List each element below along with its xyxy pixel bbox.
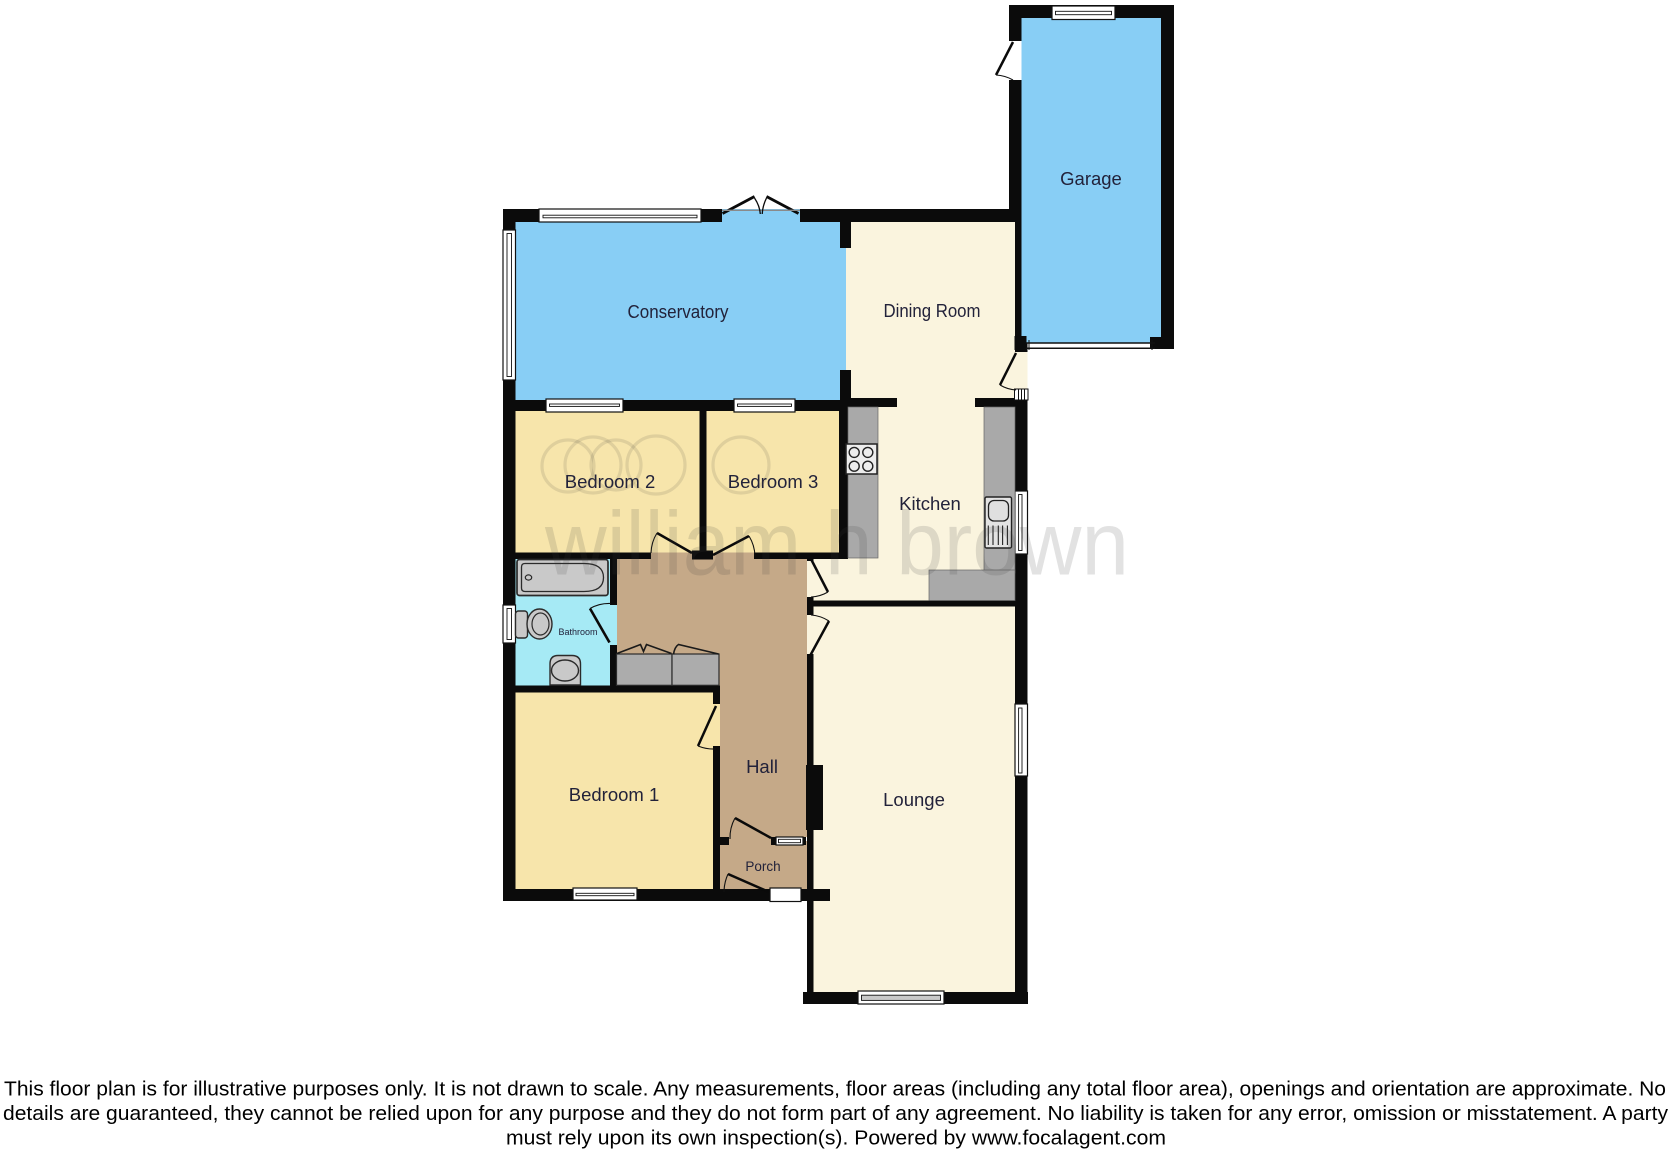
svg-text:Lounge: Lounge [883, 789, 945, 810]
svg-text:Hall: Hall [746, 756, 778, 777]
svg-text:details are guaranteed, they c: details are guaranteed, they cannot be r… [3, 1103, 1668, 1125]
svg-text:Conservatory: Conservatory [628, 301, 730, 322]
svg-text:Bedroom 3: Bedroom 3 [728, 471, 819, 492]
svg-text:Garage: Garage [1060, 168, 1122, 189]
svg-text:Dining Room: Dining Room [884, 300, 981, 321]
svg-text:Bathroom: Bathroom [558, 627, 597, 637]
svg-text:Bedroom 1: Bedroom 1 [569, 784, 660, 805]
svg-text:william h brown: william h brown [544, 495, 1129, 595]
svg-text:Porch: Porch [745, 859, 780, 874]
svg-text:must rely upon its own inspect: must rely upon its own inspection(s). Po… [506, 1128, 1166, 1150]
svg-text:This floor plan is for illustr: This floor plan is for illustrative purp… [4, 1079, 1666, 1101]
